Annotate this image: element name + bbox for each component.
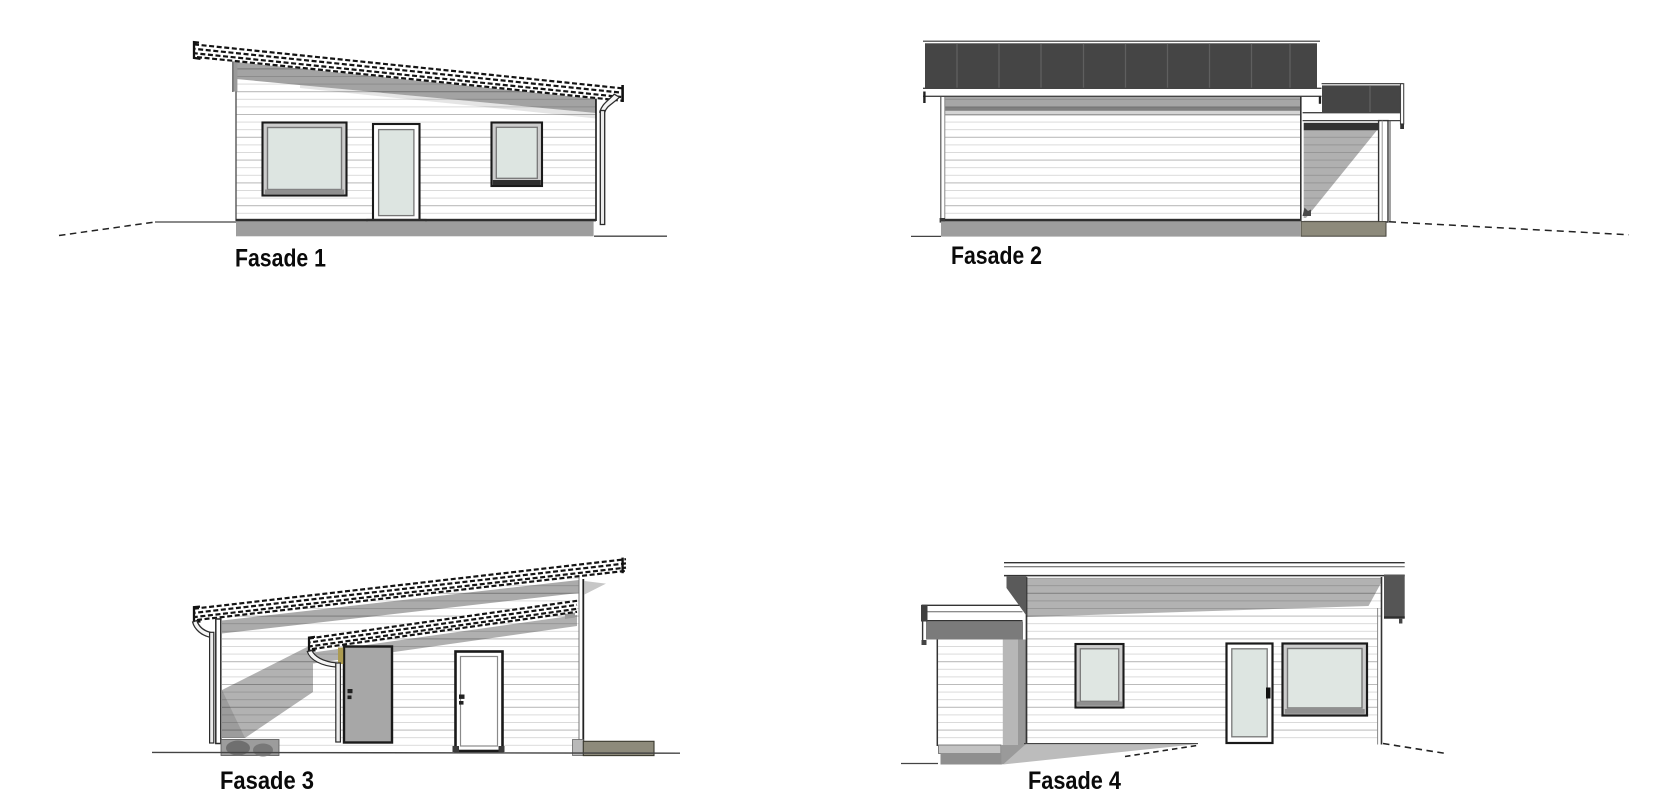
svg-text:Fasade 2: Fasade 2 [951,243,1042,270]
svg-text:Fasade 3: Fasade 3 [220,768,314,795]
svg-text:Fasade 1: Fasade 1 [235,246,326,273]
svg-text:Fasade 4: Fasade 4 [1028,768,1121,795]
